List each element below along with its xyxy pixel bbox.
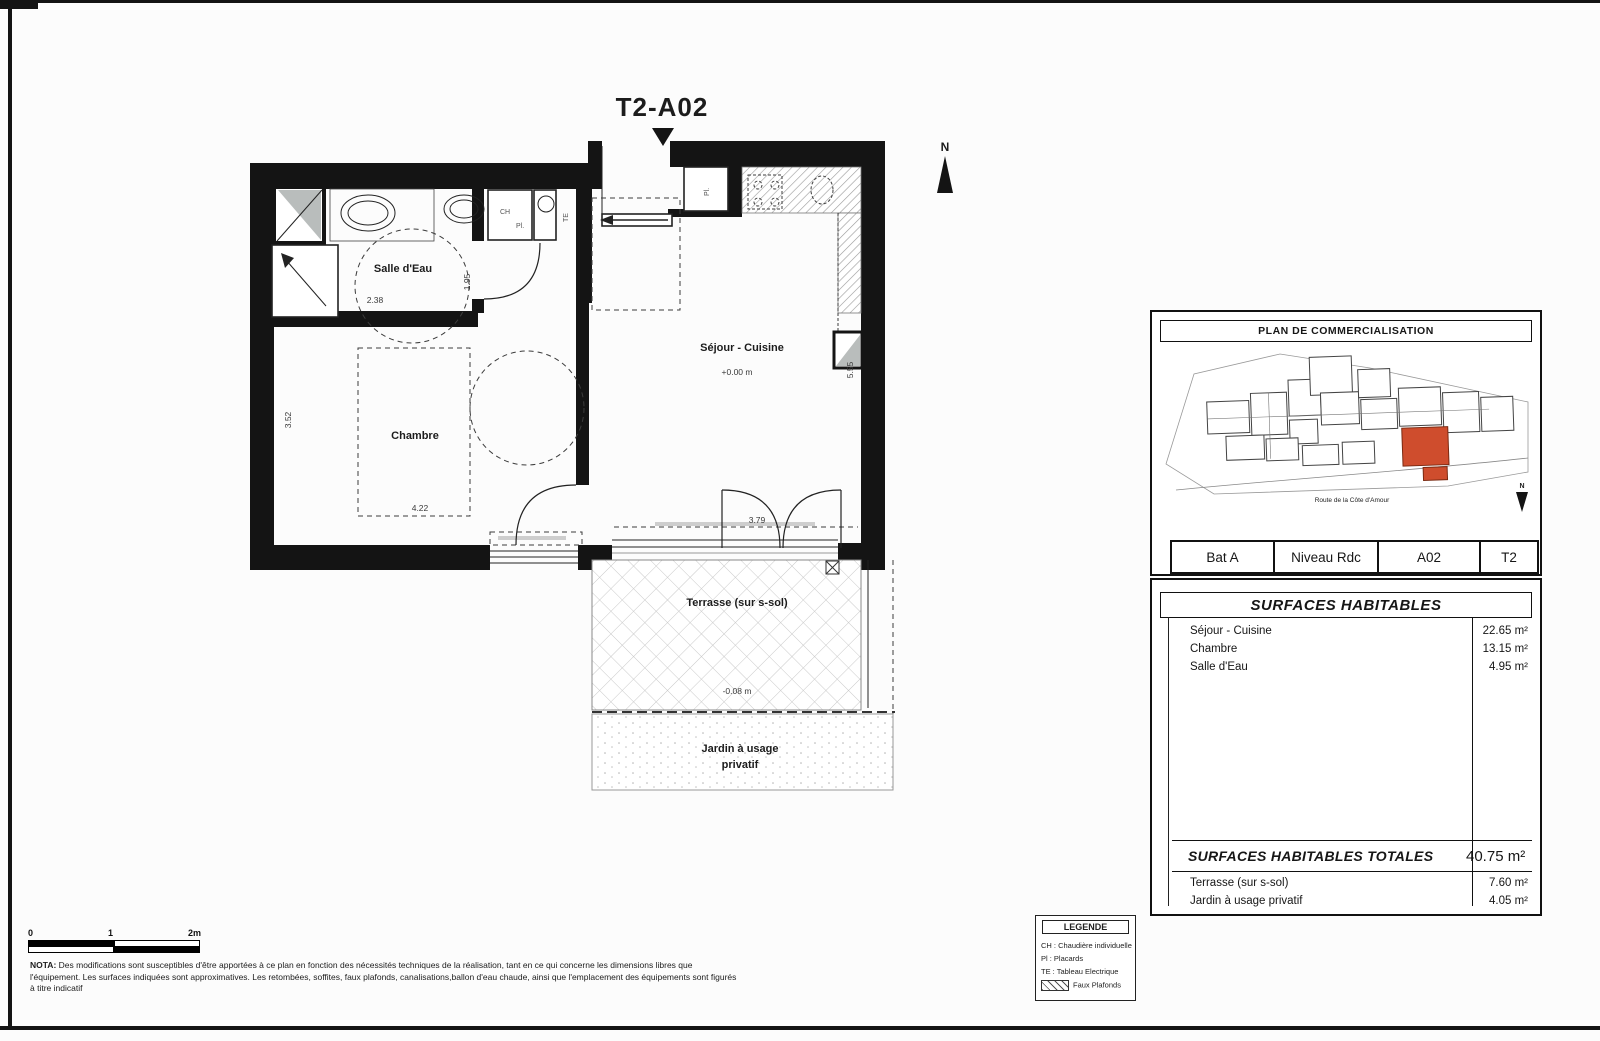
living-level: +0.00 m <box>722 367 753 377</box>
legend-item-ch: CH : Chaudière individuelle <box>1036 939 1135 952</box>
entrance-door <box>600 146 672 226</box>
scale-1: 1 <box>108 928 113 938</box>
hatch-swatch-icon <box>1041 980 1069 991</box>
surface-row-label: Séjour - Cuisine <box>1172 625 1466 637</box>
garden: Jardin à usage privatif <box>592 714 893 790</box>
commercialisation-title: PLAN DE COMMERCIALISATION <box>1258 325 1434 337</box>
electric-panel-tag: TE <box>563 213 570 222</box>
unit-id-row: Bat A Niveau Rdc A02 T2 <box>1170 540 1539 574</box>
dim-sej-h: 5.55 <box>845 361 855 378</box>
furniture-dashed <box>355 198 858 545</box>
totals-value: 40.75 m² <box>1466 848 1532 865</box>
bathroom-label: Salle d'Eau <box>374 263 432 275</box>
site-plan: Route de la Côte d'Amour N <box>1160 342 1532 540</box>
terrace-label: Terrasse (sur s-sol) <box>686 597 788 609</box>
surface-row-value: 13.15 m² <box>1466 643 1532 655</box>
bathroom-door <box>484 243 540 299</box>
legend-item-pl: Pl : Placards <box>1036 952 1135 965</box>
surface-row-label: Salle d'Eau <box>1172 661 1466 673</box>
garden-label-2: privatif <box>722 759 759 771</box>
surface-rows: Séjour - Cuisine 22.65 m² Chambre 13.15 … <box>1172 622 1532 676</box>
annex-row: Terrasse (sur s-sol) 7.60 m² <box>1172 874 1532 892</box>
scale-bar-bottom <box>28 946 200 953</box>
kitchen-closet-tag: Pl. <box>704 188 711 196</box>
surface-row: Séjour - Cuisine 22.65 m² <box>1172 622 1532 640</box>
commercialisation-box: PLAN DE COMMERCIALISATION Route de la Cô… <box>1150 310 1542 576</box>
annex-row-label: Terrasse (sur s-sol) <box>1172 877 1466 889</box>
scale-2m: 2m <box>188 928 201 938</box>
unit-number: A02 <box>1377 542 1479 572</box>
surfaces-header: SURFACES HABITABLES <box>1160 592 1532 618</box>
floor-plan-sheet: { "title": "T2-A02", "north": "N", "plan… <box>0 0 1600 1041</box>
dim-sej-w: 3.79 <box>749 515 766 525</box>
unit-building: Bat A <box>1172 542 1273 572</box>
north-arrow-icon <box>937 156 953 193</box>
sheet-border-bottom <box>0 1026 1600 1030</box>
site-north-label: N <box>1519 483 1524 490</box>
scale-bar: 0 1 2m <box>28 928 208 954</box>
annex-row-label: Jardin à usage privatif <box>1172 895 1466 907</box>
bedroom-label: Chambre <box>391 430 439 442</box>
surfaces-title: SURFACES HABITABLES <box>1251 597 1442 614</box>
unit-type: T2 <box>1479 542 1537 572</box>
legend-item-te: TE : Tableau Electrique <box>1036 965 1135 978</box>
doors <box>484 243 841 548</box>
north-label: N <box>941 140 950 154</box>
commercialisation-header: PLAN DE COMMERCIALISATION <box>1160 320 1532 342</box>
nota-label: NOTA: <box>30 960 56 970</box>
site-buildings <box>1205 350 1515 488</box>
annex-rows: Terrasse (sur s-sol) 7.60 m² Jardin à us… <box>1172 874 1532 910</box>
surface-row-value: 4.95 m² <box>1466 661 1532 673</box>
highlighted-unit-annex <box>1423 467 1447 481</box>
dim-ch-h: 3.52 <box>283 411 293 428</box>
boiler-tag: CH <box>500 209 510 216</box>
surface-row-value: 22.65 m² <box>1466 625 1532 637</box>
nota-text: NOTA: Des modifications sont susceptible… <box>30 960 742 995</box>
legend-box: LEGENDE CH : Chaudière individuelle Pl :… <box>1035 915 1136 1001</box>
totals-label: SURFACES HABITABLES TOTALES <box>1172 848 1466 864</box>
north-arrow: N <box>937 140 953 193</box>
unit-level: Niveau Rdc <box>1273 542 1377 572</box>
surface-row-label: Chambre <box>1172 643 1466 655</box>
legend-item-faux-plafonds: Faux Plafonds <box>1036 978 1135 993</box>
annex-row: Jardin à usage privatif 4.05 m² <box>1172 892 1532 910</box>
dim-sde-h: 1.95 <box>462 273 472 290</box>
annex-row-value: 7.60 m² <box>1466 877 1532 889</box>
table-left-rule <box>1168 617 1169 906</box>
dim-sde-w: 2.38 <box>367 295 384 305</box>
surface-row: Chambre 13.15 m² <box>1172 640 1532 658</box>
vanity <box>330 189 434 241</box>
highlighted-unit <box>1402 427 1449 467</box>
washbasin <box>341 195 395 231</box>
floor-plan: T2-A02 N <box>0 0 1160 830</box>
garden-label-1: Jardin à usage <box>701 743 778 755</box>
surface-row: Salle d'Eau 4.95 m² <box>1172 658 1532 676</box>
unit-title: T2-A02 <box>616 92 709 146</box>
living-label: Séjour - Cuisine <box>700 342 784 354</box>
surfaces-box: SURFACES HABITABLES Séjour - Cuisine 22.… <box>1150 578 1542 916</box>
site-north-arrow: N <box>1516 483 1528 512</box>
legend-title: LEGENDE <box>1042 920 1129 934</box>
annex-row-value: 4.05 m² <box>1466 895 1532 907</box>
unit-title-text: T2-A02 <box>616 92 709 122</box>
entry-closet: CH Pl. TE <box>488 190 570 240</box>
legend-hatch-label: Faux Plafonds <box>1073 980 1121 989</box>
dim-ch-w: 4.22 <box>412 503 429 513</box>
nota-body: Des modifications sont susceptibles d'êt… <box>30 960 736 993</box>
kitchen: Pl. <box>684 167 862 368</box>
road-label: Route de la Côte d'Amour <box>1315 497 1390 504</box>
closet-tag: Pl. <box>516 223 524 230</box>
terrace-level: -0.08 m <box>723 686 752 696</box>
scale-0: 0 <box>28 928 33 938</box>
french-door-right <box>783 490 841 548</box>
totals-row: SURFACES HABITABLES TOTALES 40.75 m² <box>1172 840 1532 872</box>
